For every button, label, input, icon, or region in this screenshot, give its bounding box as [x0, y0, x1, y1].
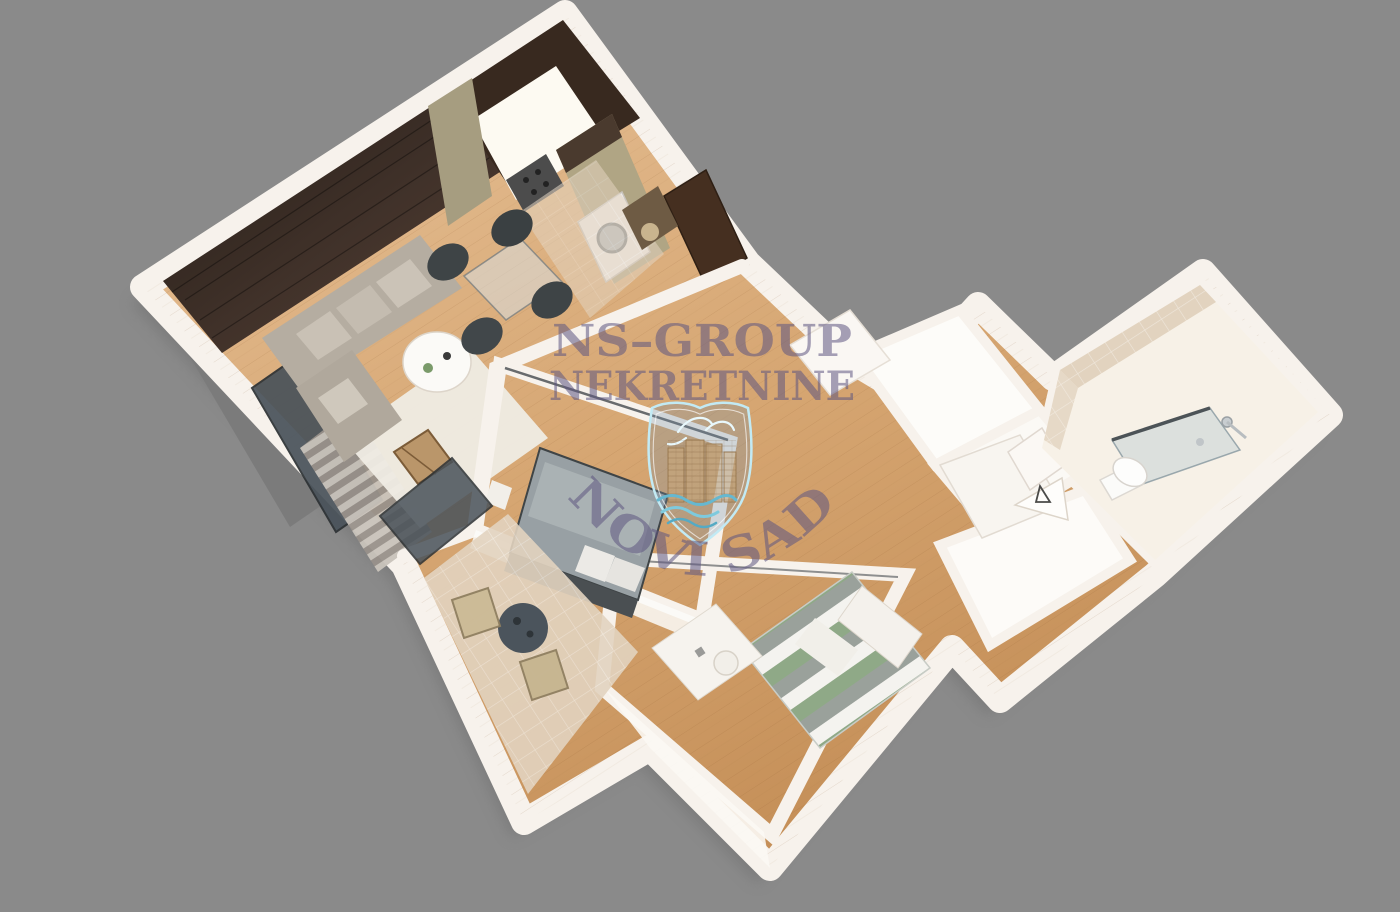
teacup	[527, 631, 534, 638]
screenshot-root: NS–GROUP NEKRETNINE	[0, 0, 1400, 912]
coffee-table	[403, 332, 471, 392]
city-buildings-icon	[668, 440, 736, 502]
floorplan-render: NS–GROUP NEKRETNINE	[0, 0, 1400, 912]
watermark-line2: NEKRETNINE	[549, 363, 855, 410]
bistro-table	[498, 603, 548, 653]
teacup	[513, 617, 521, 625]
bench-seat	[641, 223, 659, 241]
shower-valve-icon	[1196, 438, 1204, 446]
stool	[714, 651, 738, 675]
watermark-line1: NS–GROUP	[552, 316, 852, 367]
